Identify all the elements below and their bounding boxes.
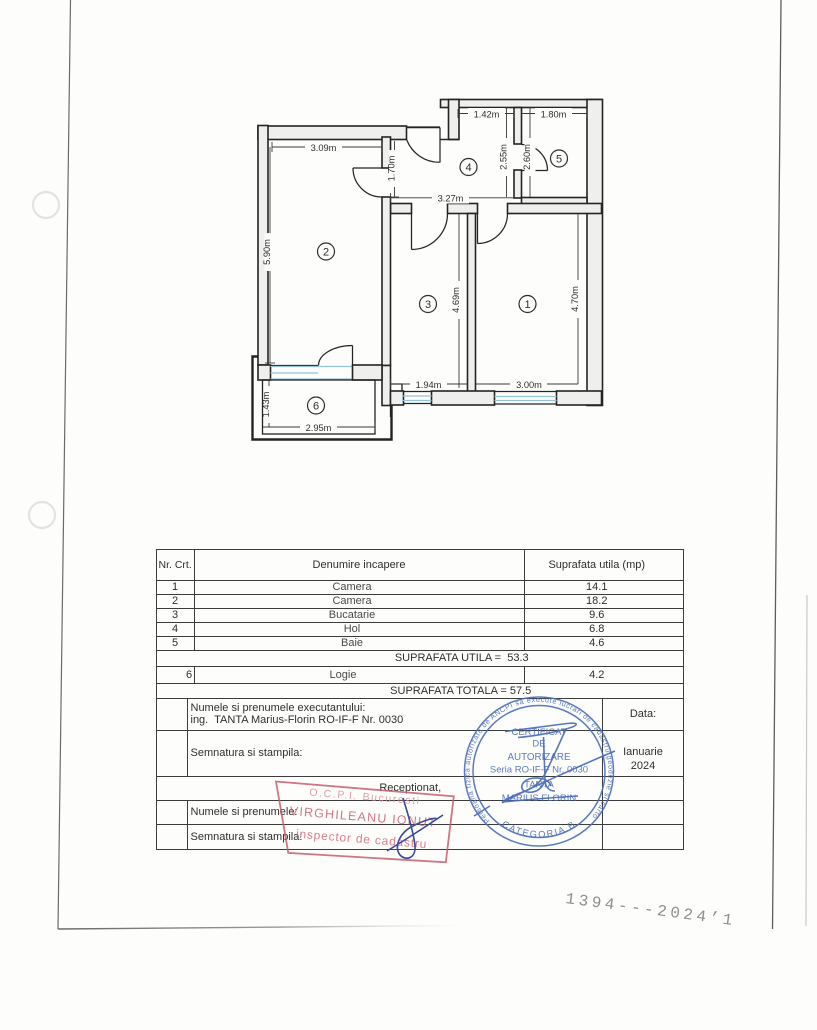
svg-text:Seria RO-IF-F Nr. 0030: Seria RO-IF-F Nr. 0030 (490, 765, 588, 776)
svg-text:CERTIFICAT: CERTIFICAT (511, 727, 566, 738)
svg-text:CATEGORIA B: CATEGORIA B (500, 819, 578, 840)
svg-text:VIRGHILEANU IONUT: VIRGHILEANU IONUT (289, 804, 437, 830)
svg-text:AUTORIZARE: AUTORIZARE (508, 752, 571, 763)
svg-text:inspector de cadastru: inspector de cadastru (296, 827, 428, 852)
svg-text:Persoana fizica autorizata de: Persoana fizica autorizata de ANCPI sa e… (0, 0, 616, 825)
svg-text:1394---2024’1: 1394---2024’1 (564, 890, 737, 930)
